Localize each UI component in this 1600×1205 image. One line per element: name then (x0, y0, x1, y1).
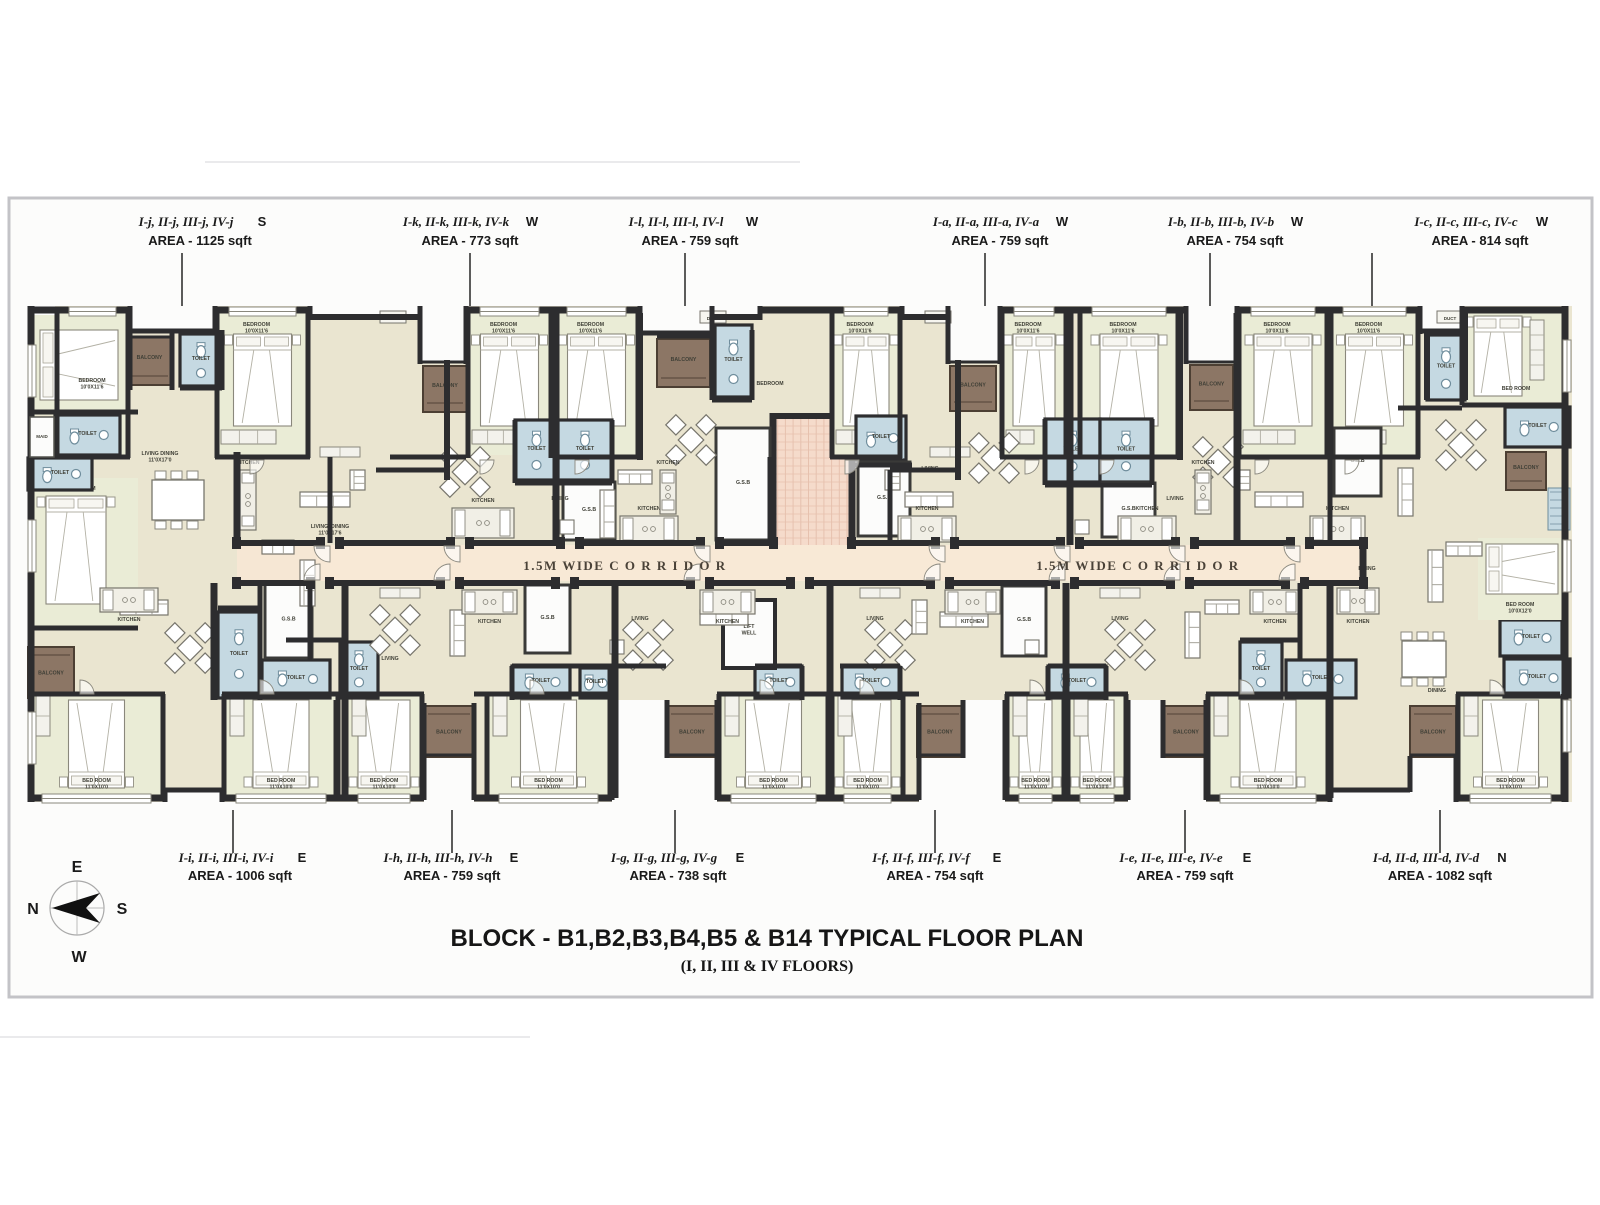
svg-text:11'0X10'0: 11'0X10'0 (537, 784, 560, 790)
svg-text:I-b, II-b, III-b, IV-b: I-b, II-b, III-b, IV-b (1167, 214, 1275, 229)
svg-text:11'0X10'0: 11'0X10'0 (1024, 784, 1047, 790)
svg-text:BEDROOM: BEDROOM (78, 378, 105, 384)
svg-text:1.5M WIDE C O R R I D O R: 1.5M WIDE C O R R I D O R (1036, 558, 1239, 573)
svg-text:I-e, II-e, III-e, IV-e: I-e, II-e, III-e, IV-e (1118, 850, 1222, 865)
svg-text:TOILET: TOILET (1437, 364, 1456, 370)
svg-text:11'0X10'0: 11'0X10'0 (85, 784, 108, 790)
svg-text:BALCONY: BALCONY (671, 357, 697, 363)
svg-text:10'0X11'6: 10'0X11'6 (1112, 328, 1135, 334)
svg-text:I-a, II-a, III-a, IV-a: I-a, II-a, III-a, IV-a (932, 214, 1040, 229)
svg-text:AREA - 754 sqft: AREA - 754 sqft (886, 868, 984, 883)
svg-text:10'0X11'6: 10'0X11'6 (849, 328, 872, 334)
svg-text:S: S (117, 901, 128, 918)
svg-text:BED ROOM: BED ROOM (534, 778, 563, 784)
svg-text:AREA - 814 sqft: AREA - 814 sqft (1431, 233, 1529, 248)
svg-text:E: E (510, 850, 519, 865)
svg-text:N: N (27, 901, 39, 918)
svg-text:TOILET: TOILET (527, 446, 546, 452)
svg-text:E: E (993, 850, 1002, 865)
svg-text:DINING: DINING (1428, 688, 1446, 694)
svg-text:I-l, II-l, III-l, IV-l: I-l, II-l, III-l, IV-l (628, 214, 724, 229)
svg-text:BED ROOM: BED ROOM (1021, 778, 1050, 784)
svg-text:I-j, II-j, III-j, IV-j: I-j, II-j, III-j, IV-j (138, 214, 234, 229)
svg-text:BED ROOM: BED ROOM (82, 778, 111, 784)
svg-text:TOILET: TOILET (1528, 423, 1547, 429)
svg-text:G.S.B: G.S.B (540, 615, 554, 621)
svg-text:BED ROOM: BED ROOM (370, 778, 399, 784)
svg-text:TOILET: TOILET (51, 470, 70, 476)
svg-text:10'0X11'6: 10'0X11'6 (579, 328, 602, 334)
svg-text:10'0X11'6: 10'0X11'6 (1357, 328, 1380, 334)
svg-text:BALCONY: BALCONY (137, 355, 163, 361)
svg-text:I-c, II-c, III-c, IV-c: I-c, II-c, III-c, IV-c (1413, 214, 1517, 229)
svg-text:BALCONY: BALCONY (436, 730, 462, 736)
svg-text:10'0X12'0: 10'0X12'0 (1508, 608, 1531, 614)
svg-text:TOILET: TOILET (1528, 674, 1547, 680)
svg-text:TOILET: TOILET (1068, 678, 1087, 684)
svg-text:G.S.B: G.S.B (281, 617, 295, 623)
svg-text:AREA - 754 sqft: AREA - 754 sqft (1186, 233, 1284, 248)
svg-text:KITCHEN: KITCHEN (915, 506, 938, 512)
svg-text:E: E (1243, 850, 1252, 865)
svg-text:BALCONY: BALCONY (1173, 730, 1199, 736)
svg-text:BALCONY: BALCONY (1513, 465, 1539, 471)
svg-text:BEDROOM: BEDROOM (1109, 322, 1136, 328)
svg-text:BEDROOM: BEDROOM (846, 322, 873, 328)
svg-text:AREA - 759 sqft: AREA - 759 sqft (1136, 868, 1234, 883)
svg-text:BEDROOM: BEDROOM (1263, 322, 1290, 328)
svg-text:KITCHEN: KITCHEN (637, 506, 660, 512)
svg-text:KITCHEN: KITCHEN (478, 619, 501, 625)
svg-text:N: N (1497, 850, 1506, 865)
svg-text:(I, II, III & IV FLOORS): (I, II, III & IV FLOORS) (681, 958, 854, 975)
svg-text:11'0X10'0: 11'0X10'0 (1499, 784, 1522, 790)
svg-text:10'0X11'6: 10'0X11'6 (1017, 328, 1040, 334)
svg-text:BALCONY: BALCONY (927, 730, 953, 736)
svg-text:10'0X11'6: 10'0X11'6 (245, 328, 268, 334)
svg-text:11'0X17'0: 11'0X17'0 (149, 457, 172, 463)
svg-text:11'0X10'0: 11'0X10'0 (270, 784, 293, 790)
svg-text:11'0X10'0: 11'0X10'0 (373, 784, 396, 790)
svg-text:BED ROOM: BED ROOM (1506, 602, 1535, 608)
svg-text:TOILET: TOILET (724, 357, 743, 363)
svg-text:AREA - 1006 sqft: AREA - 1006 sqft (188, 868, 293, 883)
svg-text:LIVING: LIVING (381, 656, 398, 662)
svg-text:KITCHEN: KITCHEN (1263, 619, 1286, 625)
svg-text:KITCHEN: KITCHEN (961, 619, 984, 625)
svg-text:1.5M WIDE C O R R I D O R: 1.5M WIDE C O R R I D O R (523, 558, 726, 573)
svg-text:I-k, II-k, III-k, IV-k: I-k, II-k, III-k, IV-k (402, 214, 510, 229)
svg-text:TOILET: TOILET (1522, 634, 1541, 640)
svg-text:AREA - 759 sqft: AREA - 759 sqft (951, 233, 1049, 248)
svg-text:TOILET: TOILET (586, 679, 605, 685)
svg-text:11'0X10'0: 11'0X10'0 (856, 784, 879, 790)
svg-text:TOILET: TOILET (1117, 447, 1136, 453)
svg-text:10'0X11'6: 10'0X11'6 (492, 328, 515, 334)
svg-text:BEDROOM: BEDROOM (756, 381, 783, 387)
svg-text:TOILET: TOILET (872, 434, 891, 440)
svg-text:BED ROOM: BED ROOM (853, 778, 882, 784)
svg-text:AREA - 759 sqft: AREA - 759 sqft (641, 233, 739, 248)
svg-text:BALCONY: BALCONY (1199, 382, 1225, 388)
svg-text:AREA - 1125 sqft: AREA - 1125 sqft (148, 233, 252, 248)
svg-text:W: W (1536, 214, 1549, 229)
svg-text:I-h, II-h, III-h, IV-h: I-h, II-h, III-h, IV-h (382, 850, 492, 865)
svg-text:10'0X11'6: 10'0X11'6 (1266, 328, 1289, 334)
svg-text:W: W (526, 214, 539, 229)
svg-text:BED ROOM: BED ROOM (1083, 778, 1112, 784)
svg-text:TOILET: TOILET (192, 356, 211, 362)
svg-text:KITCHEN: KITCHEN (1191, 460, 1214, 466)
svg-text:TOILET: TOILET (769, 678, 788, 684)
svg-text:KITCHEN: KITCHEN (117, 617, 140, 623)
svg-text:11'0X10'0: 11'0X10'0 (762, 784, 785, 790)
svg-text:E: E (736, 850, 745, 865)
svg-text:10'0X11'6: 10'0X11'6 (81, 384, 104, 390)
svg-text:TOILET: TOILET (1252, 666, 1271, 672)
svg-text:BLOCK - B1,B2,B3,B4,B5 & B14 T: BLOCK - B1,B2,B3,B4,B5 & B14 TYPICAL FLO… (451, 925, 1084, 952)
svg-text:G.S.B: G.S.B (1121, 506, 1135, 512)
svg-text:BALCONY: BALCONY (1420, 730, 1446, 736)
svg-text:KITCHEN: KITCHEN (1135, 506, 1158, 512)
svg-text:BALCONY: BALCONY (679, 730, 705, 736)
svg-text:BALCONY: BALCONY (960, 383, 986, 389)
svg-text:E: E (72, 859, 83, 876)
svg-text:KITCHEN: KITCHEN (1346, 619, 1369, 625)
svg-text:W: W (746, 214, 759, 229)
svg-text:BED ROOM: BED ROOM (1496, 778, 1525, 784)
svg-text:BEDROOM: BEDROOM (490, 322, 517, 328)
svg-text:MAID: MAID (36, 434, 48, 439)
svg-text:BED ROOM: BED ROOM (759, 778, 788, 784)
svg-text:BEDROOM: BEDROOM (243, 322, 270, 328)
svg-text:W: W (1056, 214, 1069, 229)
svg-text:BED ROOM: BED ROOM (1254, 778, 1283, 784)
svg-text:BALCONY: BALCONY (38, 671, 64, 677)
svg-text:AREA - 738 sqft: AREA - 738 sqft (629, 868, 727, 883)
svg-text:KITCHEN: KITCHEN (471, 498, 494, 504)
svg-text:11'0X10'0: 11'0X10'0 (1257, 784, 1280, 790)
svg-text:W: W (71, 949, 87, 966)
svg-text:LIVING: LIVING (1111, 616, 1128, 622)
svg-text:LIVING: LIVING (1166, 496, 1183, 502)
svg-text:G.S.B: G.S.B (736, 480, 750, 486)
svg-text:I-d, II-d, III-d, IV-d: I-d, II-d, III-d, IV-d (1372, 850, 1480, 865)
svg-text:TOILET: TOILET (576, 446, 595, 452)
svg-text:TOILET: TOILET (78, 431, 97, 437)
svg-text:BEDROOM: BEDROOM (577, 322, 604, 328)
svg-text:BED ROOM: BED ROOM (1502, 386, 1531, 392)
svg-text:AREA - 759 sqft: AREA - 759 sqft (403, 868, 501, 883)
svg-text:AREA - 773 sqft: AREA - 773 sqft (421, 233, 519, 248)
svg-text:11'0X10'0: 11'0X10'0 (1086, 784, 1109, 790)
svg-text:G.S.B: G.S.B (1017, 617, 1031, 623)
svg-text:BEDROOM: BEDROOM (1355, 322, 1382, 328)
svg-text:E: E (298, 850, 307, 865)
svg-text:S: S (258, 214, 267, 229)
svg-text:G.S.B: G.S.B (582, 507, 596, 513)
svg-text:KITCHEN: KITCHEN (716, 619, 739, 625)
svg-text:LIVING: LIVING (631, 616, 648, 622)
svg-text:BEDROOM: BEDROOM (1014, 322, 1041, 328)
svg-text:LIVING DINING: LIVING DINING (142, 451, 179, 457)
svg-text:DUCT: DUCT (1444, 316, 1457, 321)
svg-text:LIVING: LIVING (866, 616, 883, 622)
svg-text:TOILET: TOILET (287, 675, 306, 681)
svg-text:TOILET: TOILET (350, 666, 369, 672)
svg-text:I-i, II-i, III-i, IV-i: I-i, II-i, III-i, IV-i (178, 850, 274, 865)
svg-text:WELL: WELL (742, 630, 758, 636)
svg-text:I-f, II-f, III-f, IV-f: I-f, II-f, III-f, IV-f (871, 850, 971, 865)
svg-text:KITCHEN: KITCHEN (656, 460, 679, 466)
svg-text:AREA - 1082 sqft: AREA - 1082 sqft (1388, 868, 1493, 883)
svg-text:I-g, II-g, III-g, IV-g: I-g, II-g, III-g, IV-g (610, 850, 718, 865)
svg-text:W: W (1291, 214, 1304, 229)
svg-text:BED ROOM: BED ROOM (267, 778, 296, 784)
svg-text:TOILET: TOILET (230, 651, 249, 657)
